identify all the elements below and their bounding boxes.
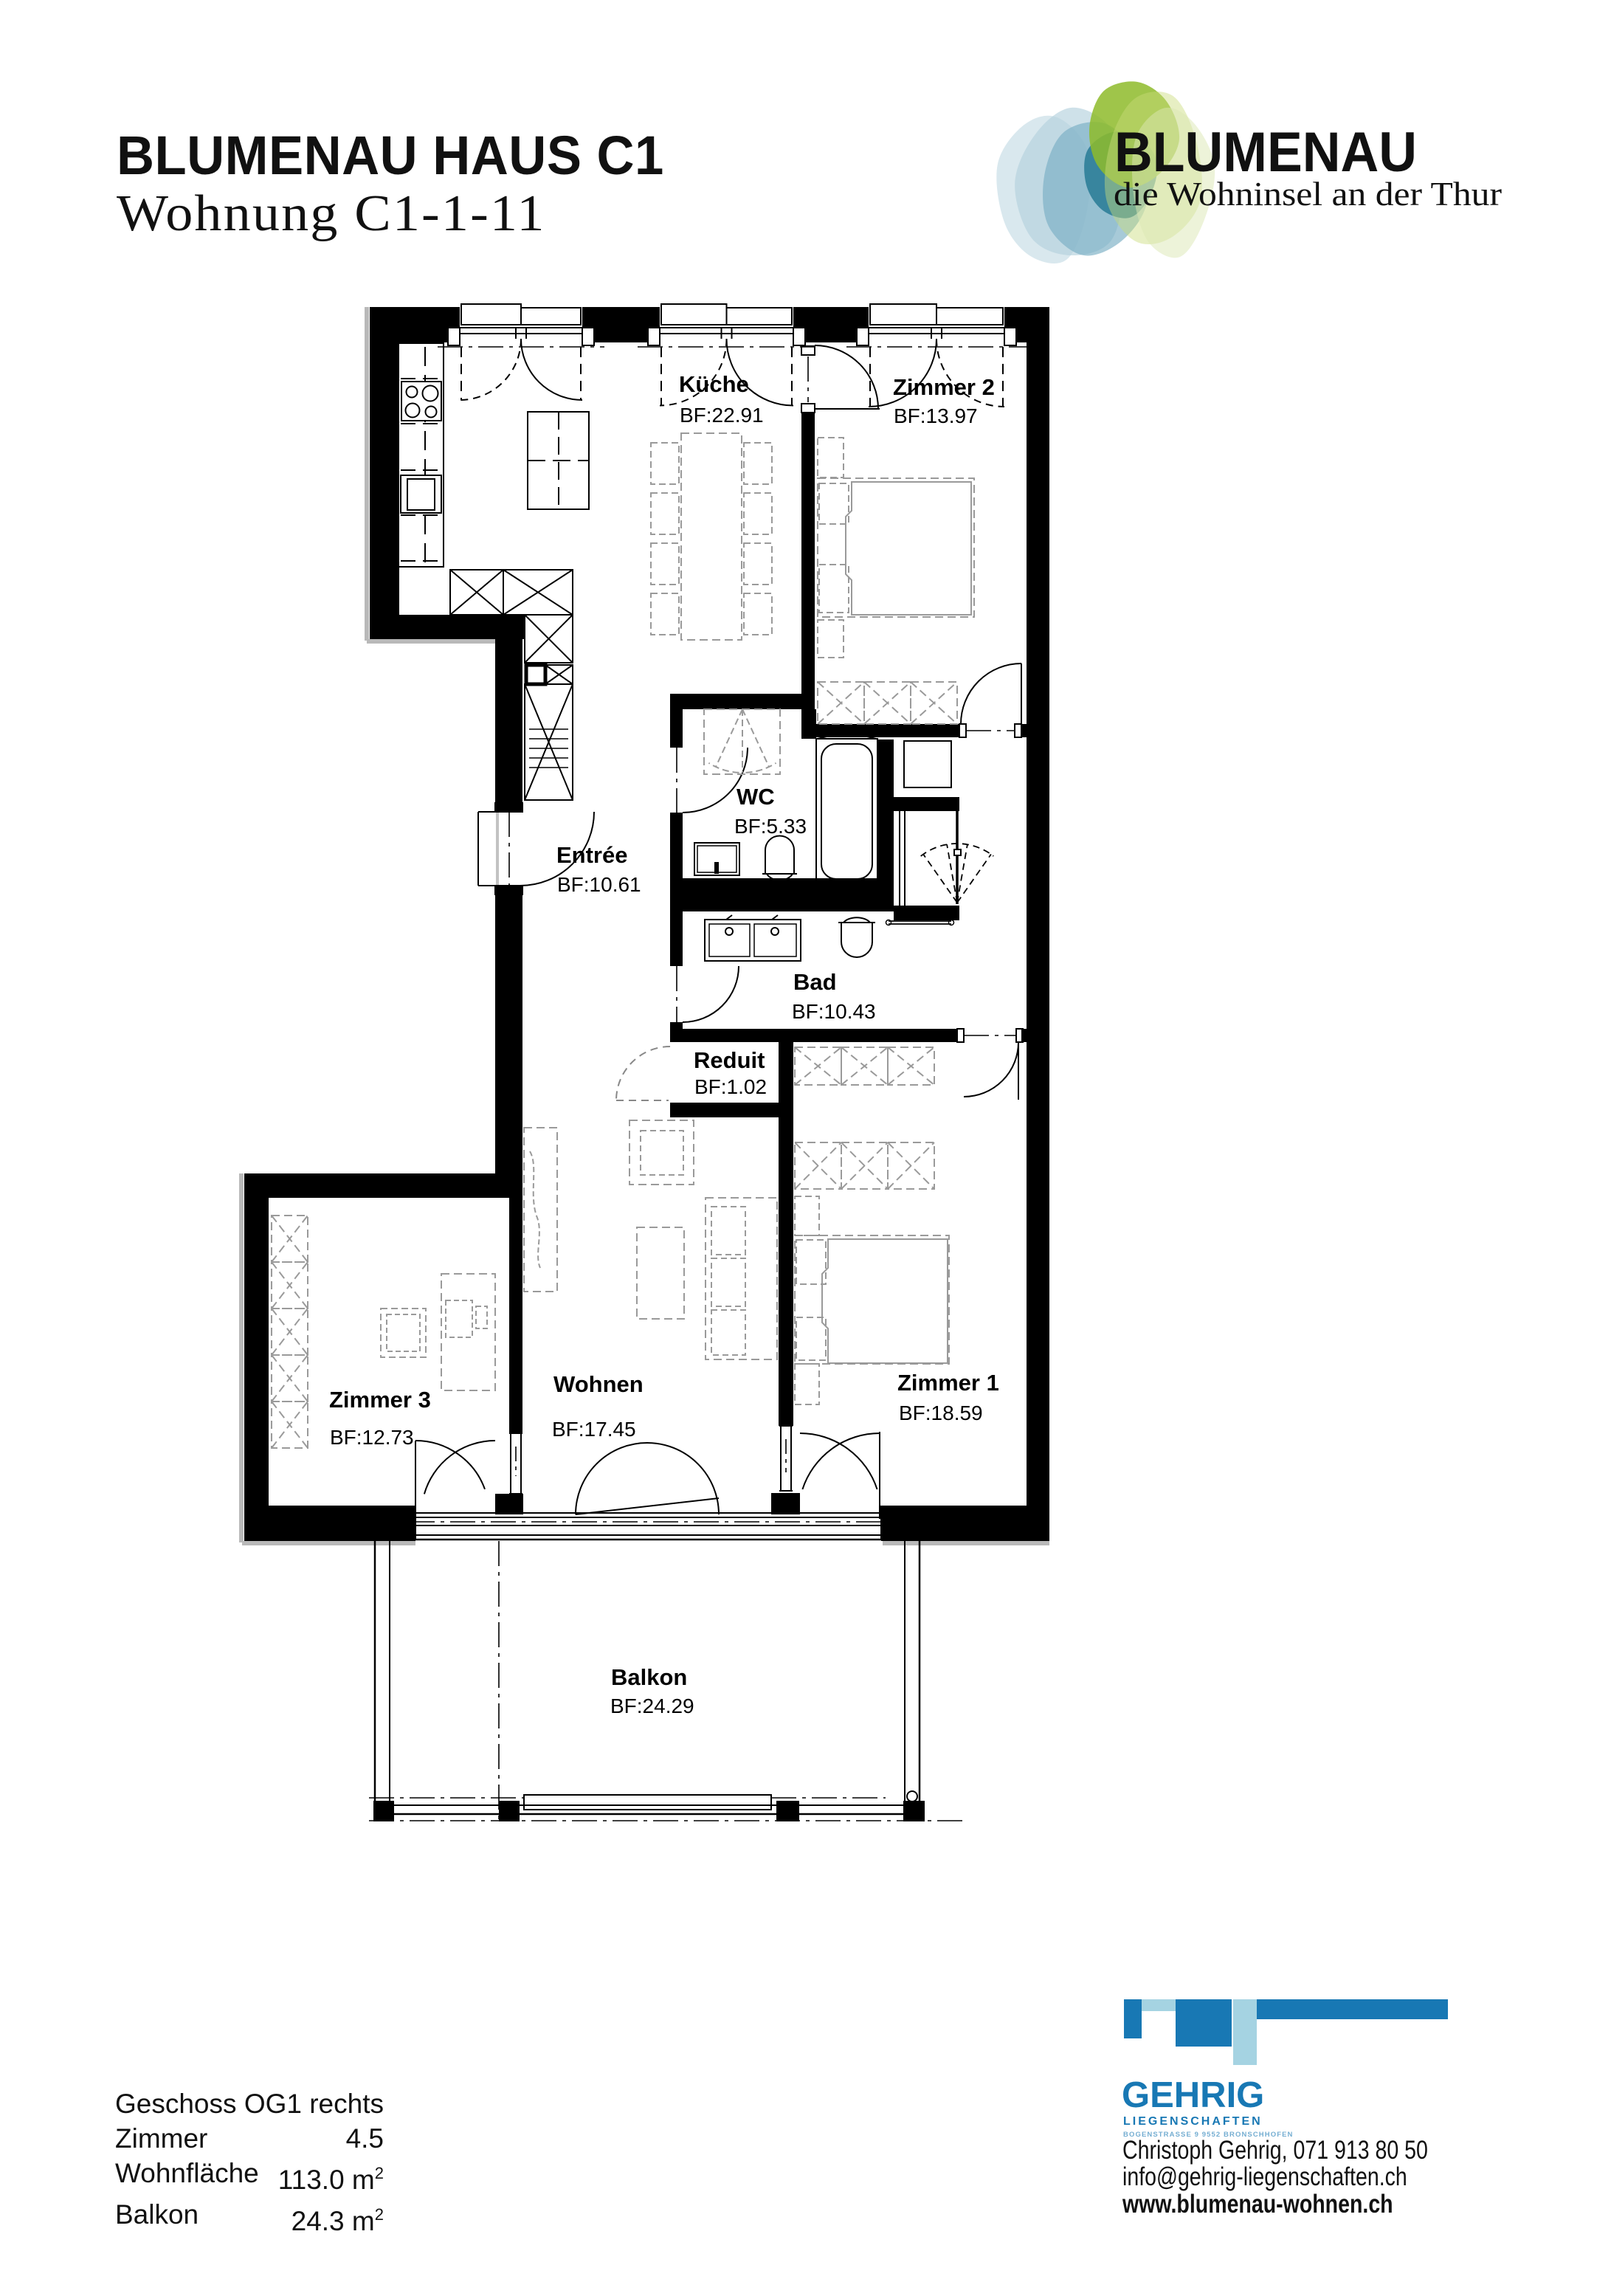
svg-text:Zimmer 3: Zimmer 3 xyxy=(329,1387,431,1413)
svg-text:Zimmer 1: Zimmer 1 xyxy=(897,1370,999,1396)
svg-text:BF:10.43: BF:10.43 xyxy=(792,1000,876,1023)
svg-text:BF:1.02: BF:1.02 xyxy=(694,1075,767,1098)
svg-text:GEHRIG: GEHRIG xyxy=(1122,2075,1264,2115)
svg-text:BF:22.91: BF:22.91 xyxy=(680,404,764,427)
svg-text:BF:24.29: BF:24.29 xyxy=(610,1695,694,1717)
svg-text:Balkon: Balkon xyxy=(611,1664,687,1690)
svg-text:BF:17.45: BF:17.45 xyxy=(552,1418,636,1441)
svg-text:Entrée: Entrée xyxy=(556,842,627,868)
svg-text:Reduit: Reduit xyxy=(694,1047,765,1073)
svg-text:Zimmer 2: Zimmer 2 xyxy=(893,374,995,400)
svg-text:BF:18.59: BF:18.59 xyxy=(899,1402,983,1424)
svg-text:Wohnen: Wohnen xyxy=(553,1371,644,1397)
svg-text:BF:12.73: BF:12.73 xyxy=(330,1426,414,1449)
svg-text:LIEGENSCHAFTEN: LIEGENSCHAFTEN xyxy=(1123,2115,1263,2128)
svg-text:WC: WC xyxy=(736,784,775,810)
svg-text:BF:13.97: BF:13.97 xyxy=(894,404,978,427)
svg-text:Bad: Bad xyxy=(793,969,837,995)
svg-text:BF:5.33: BF:5.33 xyxy=(734,815,807,838)
svg-text:Küche: Küche xyxy=(679,371,749,397)
svg-text:BF:10.61: BF:10.61 xyxy=(557,873,641,896)
